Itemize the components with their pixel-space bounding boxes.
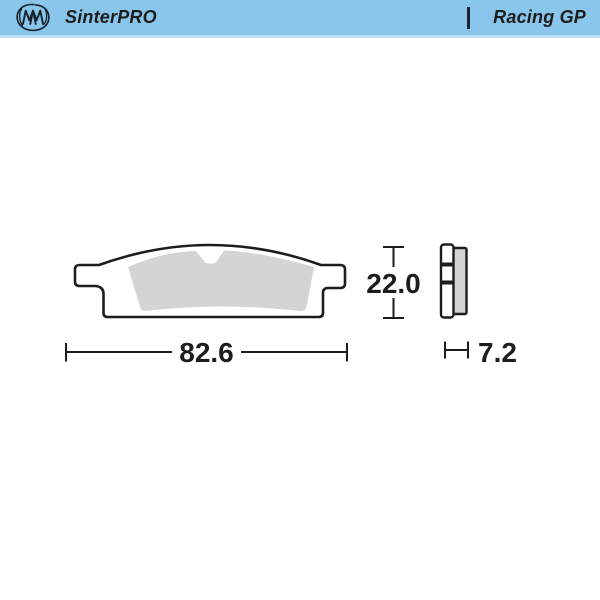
front-view — [75, 245, 345, 317]
side-plate-notch-lower — [441, 281, 455, 285]
dimension-thickness — [445, 342, 468, 359]
brake-pad-drawing: 82.6 22.0 7.2 — [0, 0, 600, 600]
page: SinterPRO Racing GP 82.6 — [0, 0, 600, 600]
side-view — [441, 245, 467, 318]
dimension-thickness-label: 7.2 — [478, 337, 517, 368]
side-plate-notch-upper — [441, 263, 455, 267]
dimension-width-label: 82.6 — [179, 337, 234, 368]
dimension-height-label: 22.0 — [366, 268, 421, 299]
